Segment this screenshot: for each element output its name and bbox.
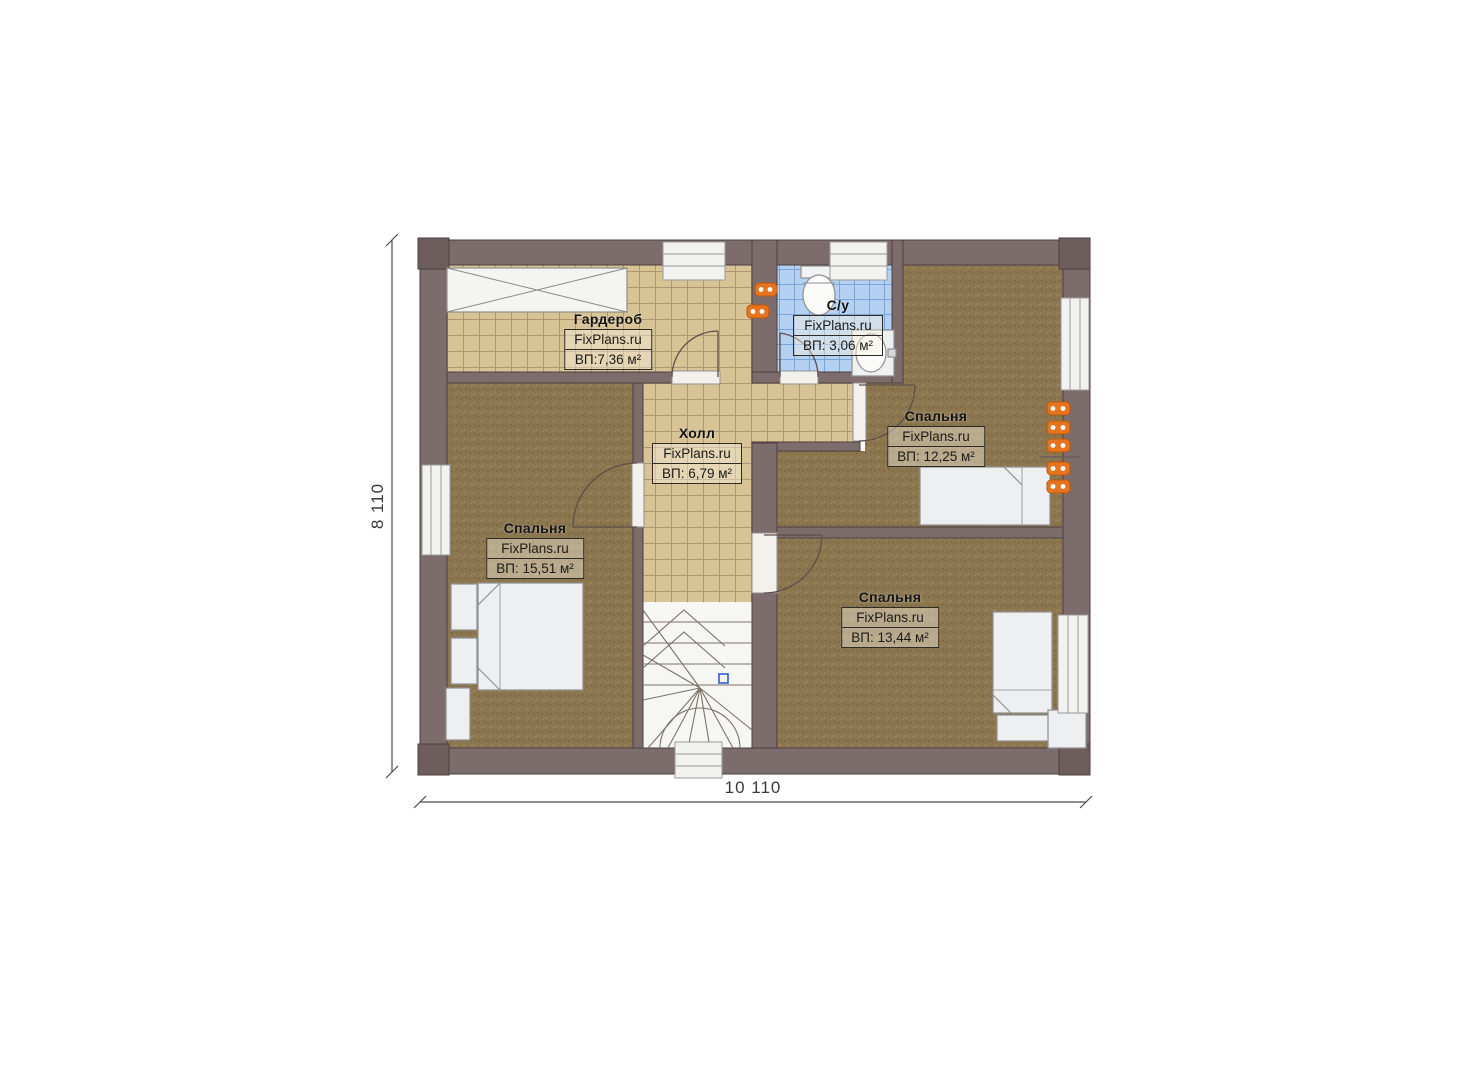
room-area: ВП: 3,06 м² [794,335,882,355]
window-left-bedroom [422,465,450,555]
bed-left-bedroom [478,583,583,690]
bed-bottom-right-bedroom [993,612,1052,713]
room-name: Спальня [887,408,985,424]
room-info-box: FixPlans.ru ВП: 6,79 м² [652,443,742,484]
radiator [747,305,769,318]
room-area: ВП: 13,44 м² [842,627,938,647]
watermark: FixPlans.ru [842,608,938,627]
wall-stairs-right [752,593,777,748]
floor-plan-drawing [0,0,1474,1080]
room-label-bedroom-left: Спальня FixPlans.ru ВП: 15,51 м² [486,520,584,579]
room-name: Спальня [486,520,584,536]
staircase-floor [643,602,752,748]
watermark: FixPlans.ru [794,316,882,335]
dimension-width-label: 10 110 [725,778,782,798]
wall-bathroom-bottom-left [752,372,780,383]
room-info-box: FixPlans.ru ВП: 12,25 м² [887,426,985,467]
room-label-hall: Холл FixPlans.ru ВП: 6,79 м² [652,425,742,484]
door-threshold-bedroom-bottom-right [752,533,777,593]
room-label-bathroom: С/у FixPlans.ru ВП: 3,06 м² [793,297,883,356]
wall-bedrooms-divider [777,527,1063,538]
door-threshold-wardrobe [672,371,720,384]
window-bottom-stairs [675,742,722,778]
wall-hall-left-upper [633,383,643,463]
room-name: С/у [793,297,883,313]
floor-plan-page: Гардероб FixPlans.ru ВП:7,36 м² С/у FixP… [0,0,1474,1080]
nightstand [451,638,477,684]
nightstand [997,715,1050,741]
watermark: FixPlans.ru [565,330,651,349]
wall-outer-bottom [420,748,1090,774]
door-threshold-bedroom-left [632,463,644,527]
room-info-box: FixPlans.ru ВП: 15,51 м² [486,538,584,579]
room-label-wardrobe: Гардероб FixPlans.ru ВП:7,36 м² [564,311,652,370]
bedroom-top-right-floor-nook [777,451,865,527]
door-threshold-bathroom [780,371,818,384]
room-info-box: FixPlans.ru ВП: 3,06 м² [793,315,883,356]
room-label-bedroom-top-right: Спальня FixPlans.ru ВП: 12,25 м² [887,408,985,467]
window-right-top [1061,298,1089,390]
watermark: FixPlans.ru [487,539,583,558]
room-area: ВП: 12,25 м² [888,446,984,466]
watermark: FixPlans.ru [888,427,984,446]
room-label-bedroom-bottom-right: Спальня FixPlans.ru ВП: 13,44 м² [841,589,939,648]
corner-post [418,744,449,775]
room-name: Гардероб [564,311,652,327]
room-name: Холл [652,425,742,441]
watermark: FixPlans.ru [653,444,741,463]
door-threshold-bedroom-top-right [853,383,866,441]
wall-wardrobe-bottom [447,372,675,383]
corner-post [1059,744,1090,775]
bed-top-right-bedroom [920,467,1050,525]
nightstand [451,584,477,630]
wall-hall-left-lower [633,527,643,748]
hall-floor [643,372,752,602]
corner-post [1059,238,1090,269]
room-info-box: FixPlans.ru ВП: 13,44 м² [841,607,939,648]
window-right-bottom [1058,615,1088,713]
window-top-bathroom [830,242,887,280]
dimension-height-label: 8 110 [368,483,388,529]
room-area: ВП:7,36 м² [565,349,651,369]
wall-hall-right [752,443,777,533]
hall-branch-floor [752,383,855,443]
bedroom-top-right-floor-upper [903,265,1063,372]
room-info-box: FixPlans.ru ВП:7,36 м² [564,329,652,370]
room-area: ВП: 6,79 м² [653,463,741,483]
room-area: ВП: 15,51 м² [487,558,583,578]
room-name: Спальня [841,589,939,605]
window-top-left [663,242,725,280]
corner-post [418,238,449,269]
radiator [755,283,777,296]
dresser [1048,710,1086,748]
closet [447,268,627,312]
dresser [446,688,470,740]
